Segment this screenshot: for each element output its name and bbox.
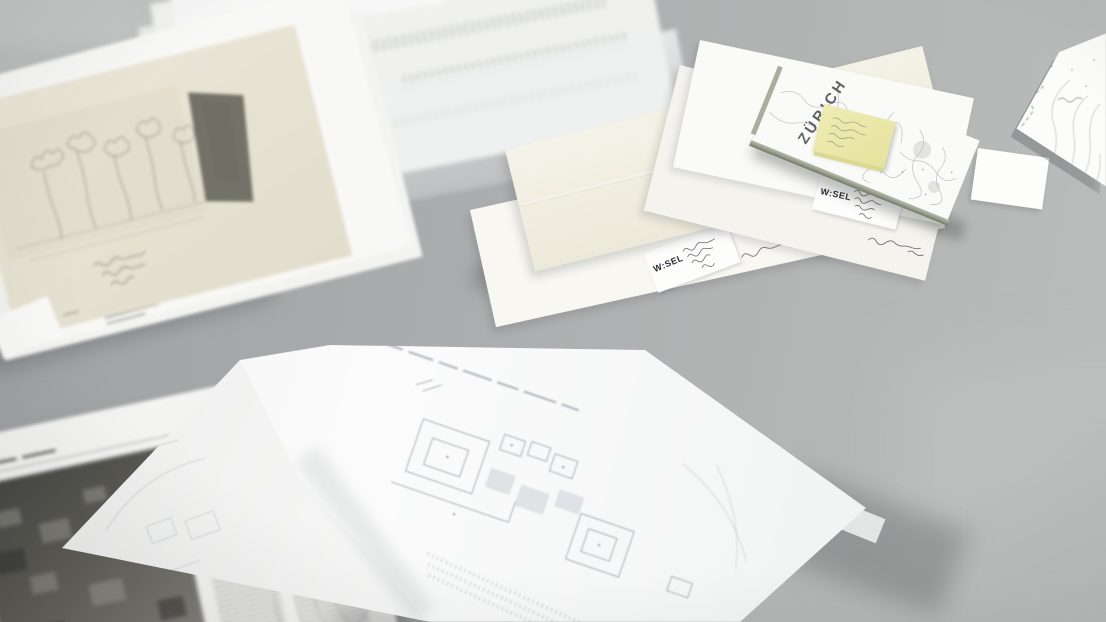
header-dash bbox=[0, 457, 17, 465]
header-dash bbox=[22, 449, 56, 459]
photo-scene: W:SEL W:SEL bbox=[0, 0, 1106, 622]
